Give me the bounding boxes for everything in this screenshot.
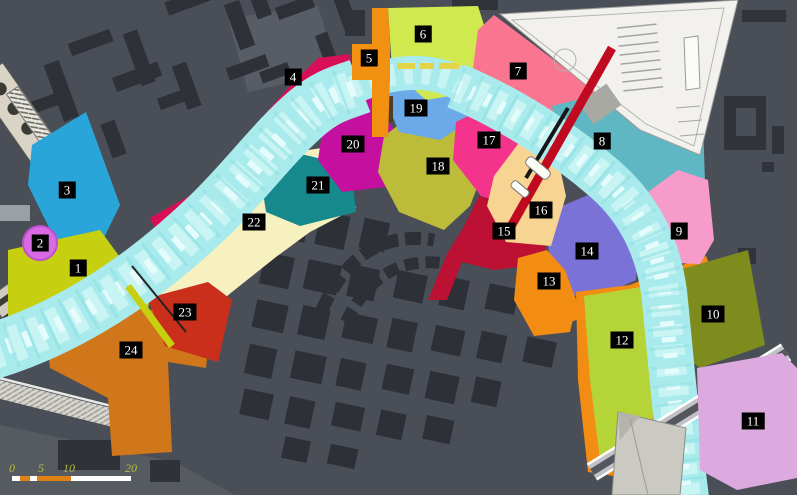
- zone-label-3[interactable]: 3: [59, 182, 76, 199]
- scale-label-5: 5: [38, 461, 44, 475]
- zone-label-24[interactable]: 24: [120, 342, 143, 359]
- zone-label-18[interactable]: 18: [427, 158, 450, 175]
- zone-label-4[interactable]: 4: [285, 69, 302, 86]
- zone-label-17[interactable]: 17: [478, 132, 501, 149]
- zone-label-16[interactable]: 16: [530, 202, 553, 219]
- zone-label-11[interactable]: 11: [742, 413, 765, 430]
- zone-label-9[interactable]: 9: [671, 223, 688, 240]
- zone-label-7[interactable]: 7: [510, 63, 527, 80]
- zone-label-23[interactable]: 23: [174, 304, 197, 321]
- zone-label-21[interactable]: 21: [307, 177, 330, 194]
- yellow-jetty: [397, 63, 459, 69]
- zone-label-6[interactable]: 6: [415, 26, 432, 43]
- zone-label-15[interactable]: 15: [493, 223, 516, 240]
- scale-label-0: 0: [9, 461, 15, 475]
- map-canvas: 0 5 10 20: [0, 0, 797, 495]
- scale-label-20: 20: [125, 461, 137, 475]
- zone-label-5[interactable]: 5: [361, 50, 378, 67]
- zone-label-10[interactable]: 10: [702, 306, 725, 323]
- zone-label-20[interactable]: 20: [342, 136, 365, 153]
- zone-label-1[interactable]: 1: [70, 260, 87, 277]
- zone-label-13[interactable]: 13: [538, 273, 561, 290]
- zone-label-19[interactable]: 19: [405, 100, 428, 117]
- scale-label-10: 10: [63, 461, 75, 475]
- zone-label-22[interactable]: 22: [243, 214, 266, 231]
- zone-label-2[interactable]: 2: [32, 235, 49, 252]
- zone-label-14[interactable]: 14: [576, 243, 599, 260]
- zone-label-12[interactable]: 12: [611, 332, 634, 349]
- masterplan-map: 0 5 10 20 1 2 3 4 5 6 7 8 9 10 11 12 13 …: [0, 0, 797, 495]
- zone-label-8[interactable]: 8: [594, 133, 611, 150]
